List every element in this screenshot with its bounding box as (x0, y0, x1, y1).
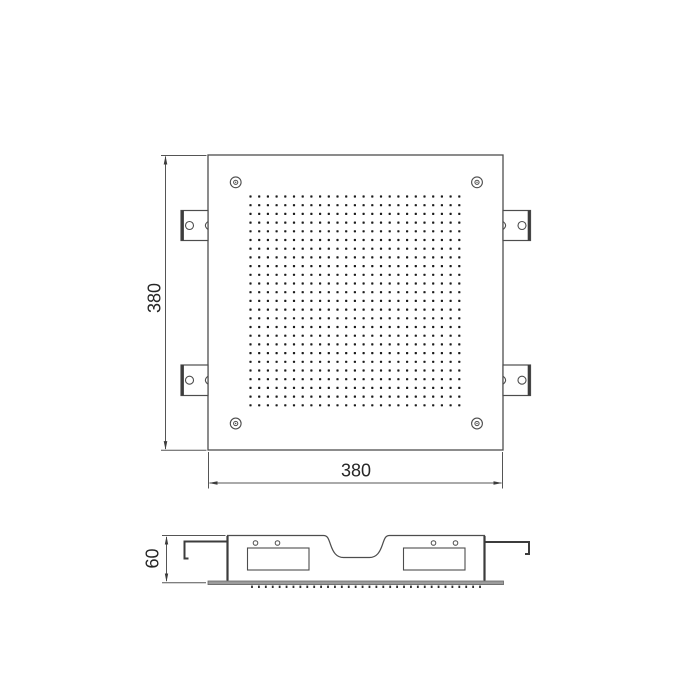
spray-hole (249, 369, 251, 371)
spray-hole (336, 265, 338, 267)
arrowhead-left (209, 481, 218, 485)
spray-hole (363, 369, 365, 371)
spray-hole (345, 300, 347, 302)
spray-hole (249, 291, 251, 293)
spray-hole (276, 300, 278, 302)
spray-hole (293, 265, 295, 267)
spray-hole (249, 387, 251, 389)
nozzle-tick (465, 586, 467, 588)
spray-hole (389, 204, 391, 206)
spray-hole (345, 378, 347, 380)
spray-hole (380, 256, 382, 258)
spray-hole (328, 343, 330, 345)
spray-hole (345, 204, 347, 206)
spray-hole (406, 256, 408, 258)
spray-hole (371, 265, 373, 267)
spray-hole (319, 369, 321, 371)
spray-hole (249, 265, 251, 267)
spray-hole (284, 248, 286, 250)
spray-hole (310, 282, 312, 284)
spray-hole (397, 222, 399, 224)
spray-hole (371, 369, 373, 371)
spray-hole (450, 317, 452, 319)
spray-hole (432, 343, 434, 345)
corner-screw-top-right (472, 177, 483, 188)
arrowhead-up (164, 156, 168, 165)
spray-hole (293, 230, 295, 232)
spray-hole (397, 239, 399, 241)
spray-hole (267, 282, 269, 284)
corner-screw-top-left (230, 177, 241, 188)
spray-hole (249, 239, 251, 241)
spray-hole (354, 248, 356, 250)
spray-hole (267, 404, 269, 406)
spray-hole (284, 239, 286, 241)
spray-hole (336, 404, 338, 406)
spray-hole (450, 387, 452, 389)
spray-hole (363, 291, 365, 293)
spray-hole (423, 239, 425, 241)
spray-hole (258, 222, 260, 224)
spray-hole (284, 326, 286, 328)
spray-hole (432, 317, 434, 319)
spray-hole (354, 213, 356, 215)
spray-hole (371, 343, 373, 345)
spray-hole (310, 265, 312, 267)
spray-hole (380, 230, 382, 232)
spray-hole (423, 404, 425, 406)
spray-hole (423, 300, 425, 302)
spray-hole (397, 256, 399, 258)
spray-hole (345, 274, 347, 276)
spray-hole (363, 282, 365, 284)
spray-hole (397, 343, 399, 345)
spray-hole (458, 326, 460, 328)
spray-hole (397, 248, 399, 250)
spray-hole (397, 387, 399, 389)
spray-hole (293, 274, 295, 276)
spray-hole (354, 309, 356, 311)
spray-hole (293, 396, 295, 398)
spray-hole (389, 282, 391, 284)
spray-hole (371, 291, 373, 293)
mounting-bracket-right-top (503, 211, 531, 241)
spray-hole (450, 309, 452, 311)
spray-hole (302, 222, 304, 224)
spray-hole (458, 230, 460, 232)
bracket-hole (275, 541, 280, 546)
spray-hole (354, 222, 356, 224)
spray-hole (276, 369, 278, 371)
spray-hole (450, 248, 452, 250)
spray-hole (397, 396, 399, 398)
spray-hole (328, 248, 330, 250)
mounting-bracket-left-top (181, 211, 208, 241)
spray-hole (258, 387, 260, 389)
spray-hole (415, 239, 417, 241)
spray-hole (450, 335, 452, 337)
nozzle-tick (272, 586, 274, 588)
spray-hole (345, 256, 347, 258)
spray-hole (336, 195, 338, 197)
spray-hole (258, 239, 260, 241)
spray-hole (284, 195, 286, 197)
nozzle-tick (479, 586, 481, 588)
spray-hole (328, 204, 330, 206)
spray-hole (328, 309, 330, 311)
spray-hole (267, 274, 269, 276)
spray-hole (258, 361, 260, 363)
spray-hole (302, 361, 304, 363)
spray-hole (267, 195, 269, 197)
spray-hole (450, 300, 452, 302)
spray-hole (293, 361, 295, 363)
spray-hole (336, 239, 338, 241)
spray-hole (406, 248, 408, 250)
spray-hole (319, 204, 321, 206)
spray-hole (380, 213, 382, 215)
drawing-page: 380 380 60 (0, 0, 700, 700)
spray-hole (336, 256, 338, 258)
spray-hole (415, 343, 417, 345)
spray-hole (415, 222, 417, 224)
spray-hole (389, 195, 391, 197)
nozzle-tick (375, 586, 377, 588)
spray-hole (406, 230, 408, 232)
spray-hole (458, 361, 460, 363)
spray-hole (415, 309, 417, 311)
spray-hole (380, 239, 382, 241)
spray-hole (380, 265, 382, 267)
spray-hole (371, 213, 373, 215)
spray-hole (258, 256, 260, 258)
spray-hole (310, 369, 312, 371)
spray-hole (354, 195, 356, 197)
spring-clip-right (485, 542, 530, 554)
spray-hole (293, 343, 295, 345)
spray-hole (432, 230, 434, 232)
spray-hole (249, 204, 251, 206)
spray-hole (450, 222, 452, 224)
spray-hole (354, 256, 356, 258)
spray-hole (432, 378, 434, 380)
spray-hole (293, 309, 295, 311)
spray-hole (354, 317, 356, 319)
spray-hole (397, 309, 399, 311)
spray-hole (363, 230, 365, 232)
nozzle-tick (355, 586, 357, 588)
spray-hole (258, 309, 260, 311)
spray-hole (310, 274, 312, 276)
spray-hole (441, 274, 443, 276)
spray-hole (415, 256, 417, 258)
spray-hole (328, 274, 330, 276)
spray-hole (441, 265, 443, 267)
spray-hole (441, 195, 443, 197)
spray-hole (432, 213, 434, 215)
spray-hole (441, 343, 443, 345)
spray-hole (371, 352, 373, 354)
spray-hole (371, 361, 373, 363)
spray-hole (319, 309, 321, 311)
spray-hole (293, 317, 295, 319)
spray-hole (310, 378, 312, 380)
spray-hole (432, 326, 434, 328)
spray-hole (267, 213, 269, 215)
spray-hole (441, 369, 443, 371)
spray-hole (284, 335, 286, 337)
spray-hole (371, 274, 373, 276)
spray-hole (258, 248, 260, 250)
spray-hole (406, 274, 408, 276)
nozzle-tick (320, 586, 322, 588)
nozzle-tick (451, 586, 453, 588)
spray-hole (293, 335, 295, 337)
spray-hole (432, 300, 434, 302)
mounting-bracket-right-bottom (503, 365, 531, 396)
spray-hole (336, 282, 338, 284)
spray-hole (441, 309, 443, 311)
spray-hole (302, 230, 304, 232)
spray-hole (328, 352, 330, 354)
spray-hole (258, 352, 260, 354)
spray-hole (319, 378, 321, 380)
spray-hole (423, 352, 425, 354)
spray-hole (302, 326, 304, 328)
spray-hole (284, 396, 286, 398)
spray-hole (336, 300, 338, 302)
spray-hole (380, 326, 382, 328)
spray-hole (345, 343, 347, 345)
spray-hole (450, 195, 452, 197)
spray-hole (310, 256, 312, 258)
spray-hole (354, 274, 356, 276)
spray-hole (345, 335, 347, 337)
spray-hole (363, 195, 365, 197)
spray-hole (319, 213, 321, 215)
spray-hole (406, 369, 408, 371)
spray-hole (267, 300, 269, 302)
spray-hole (284, 213, 286, 215)
spray-hole (415, 282, 417, 284)
spray-hole (345, 265, 347, 267)
spray-hole (345, 404, 347, 406)
spray-hole (328, 300, 330, 302)
spray-hole (363, 326, 365, 328)
spray-hole (276, 256, 278, 258)
spray-hole (354, 343, 356, 345)
spray-hole (345, 369, 347, 371)
spray-hole (406, 213, 408, 215)
spray-hole (458, 282, 460, 284)
spray-hole (293, 300, 295, 302)
spray-hole (380, 248, 382, 250)
spray-hole (302, 369, 304, 371)
spray-hole (441, 378, 443, 380)
spray-hole (441, 213, 443, 215)
spray-hole (267, 326, 269, 328)
spray-hole (267, 239, 269, 241)
spray-hole (319, 222, 321, 224)
spray-hole (336, 396, 338, 398)
spray-hole (423, 326, 425, 328)
spray-hole (441, 352, 443, 354)
spray-hole (293, 248, 295, 250)
spray-hole (458, 222, 460, 224)
spray-hole (354, 239, 356, 241)
spray-hole (371, 387, 373, 389)
spray-hole (319, 239, 321, 241)
spray-hole (371, 335, 373, 337)
spray-hole (363, 387, 365, 389)
spray-hole (423, 213, 425, 215)
spray-hole (276, 352, 278, 354)
spray-hole (389, 230, 391, 232)
spray-hole (276, 343, 278, 345)
spray-hole (432, 369, 434, 371)
spray-hole (336, 222, 338, 224)
spray-hole (319, 291, 321, 293)
spray-hole (258, 230, 260, 232)
nozzle-tick (438, 586, 440, 588)
nozzle-tick (258, 586, 260, 588)
spray-hole (345, 213, 347, 215)
spray-hole (319, 335, 321, 337)
spray-hole (380, 352, 382, 354)
spray-hole (310, 230, 312, 232)
corner-screw-bottom-right (472, 418, 483, 429)
spray-hole (432, 274, 434, 276)
spray-hole (319, 343, 321, 345)
spray-hole (380, 300, 382, 302)
spray-hole (284, 274, 286, 276)
spray-hole (319, 326, 321, 328)
spray-hole (397, 213, 399, 215)
spray-hole (415, 300, 417, 302)
spray-hole (432, 239, 434, 241)
spray-hole (450, 369, 452, 371)
spray-hole (293, 195, 295, 197)
spray-hole (336, 274, 338, 276)
spray-hole (302, 195, 304, 197)
spray-hole (284, 361, 286, 363)
spray-hole (293, 352, 295, 354)
nozzle-tick (445, 586, 447, 588)
spray-hole (450, 213, 452, 215)
spray-hole (458, 335, 460, 337)
spray-hole (423, 369, 425, 371)
spray-hole (423, 230, 425, 232)
spray-hole (328, 326, 330, 328)
spray-hole (276, 335, 278, 337)
spray-hole (458, 352, 460, 354)
spray-hole (380, 282, 382, 284)
spray-hole (276, 248, 278, 250)
spray-hole (258, 317, 260, 319)
spray-hole (423, 282, 425, 284)
spray-hole (432, 361, 434, 363)
spray-hole (415, 352, 417, 354)
spray-hole (328, 404, 330, 406)
spray-hole (423, 195, 425, 197)
spray-hole (397, 204, 399, 206)
spray-hole (441, 317, 443, 319)
bracket-hole (453, 541, 458, 546)
nozzle-tick (472, 586, 474, 588)
spray-hole (336, 213, 338, 215)
spray-hole (363, 352, 365, 354)
spray-hole (328, 396, 330, 398)
spray-hole (450, 282, 452, 284)
spray-hole (423, 248, 425, 250)
spray-hole (458, 213, 460, 215)
spray-hole (258, 204, 260, 206)
spray-hole (441, 326, 443, 328)
spray-hole (397, 404, 399, 406)
spray-hole (389, 343, 391, 345)
nozzle-tick (410, 586, 412, 588)
housing-body-outline (228, 536, 485, 582)
spray-hole (284, 265, 286, 267)
spray-hole (310, 361, 312, 363)
spray-hole (276, 274, 278, 276)
spray-hole (441, 256, 443, 258)
spray-hole (267, 343, 269, 345)
spray-hole (310, 352, 312, 354)
spray-hole (458, 309, 460, 311)
spray-hole (319, 230, 321, 232)
spray-hole (249, 282, 251, 284)
spray-hole (258, 396, 260, 398)
spray-hole (415, 213, 417, 215)
spray-hole (284, 387, 286, 389)
nozzle-tick (403, 586, 405, 588)
spray-hole (371, 404, 373, 406)
spray-hole (415, 326, 417, 328)
spray-hole (310, 300, 312, 302)
spray-hole (249, 326, 251, 328)
spray-hole (354, 404, 356, 406)
spray-hole (380, 309, 382, 311)
spray-hole (450, 230, 452, 232)
spray-hole (310, 248, 312, 250)
spray-hole (441, 404, 443, 406)
spray-hole (441, 396, 443, 398)
spray-hole (328, 282, 330, 284)
spray-hole (406, 404, 408, 406)
spray-hole (389, 222, 391, 224)
spray-hole (267, 222, 269, 224)
spray-hole (363, 396, 365, 398)
spray-hole (371, 378, 373, 380)
spray-hole (363, 378, 365, 380)
spray-hole (363, 317, 365, 319)
spray-hole (406, 396, 408, 398)
spray-hole (432, 387, 434, 389)
spray-hole (267, 361, 269, 363)
spray-hole (371, 222, 373, 224)
spray-hole (345, 195, 347, 197)
spray-hole (267, 204, 269, 206)
spray-hole (276, 239, 278, 241)
spray-hole (293, 387, 295, 389)
arrowhead-down (165, 574, 168, 583)
spray-hole (258, 213, 260, 215)
bracket-hole (253, 541, 258, 546)
spray-hole (406, 291, 408, 293)
spray-hole (389, 309, 391, 311)
spray-hole (354, 230, 356, 232)
